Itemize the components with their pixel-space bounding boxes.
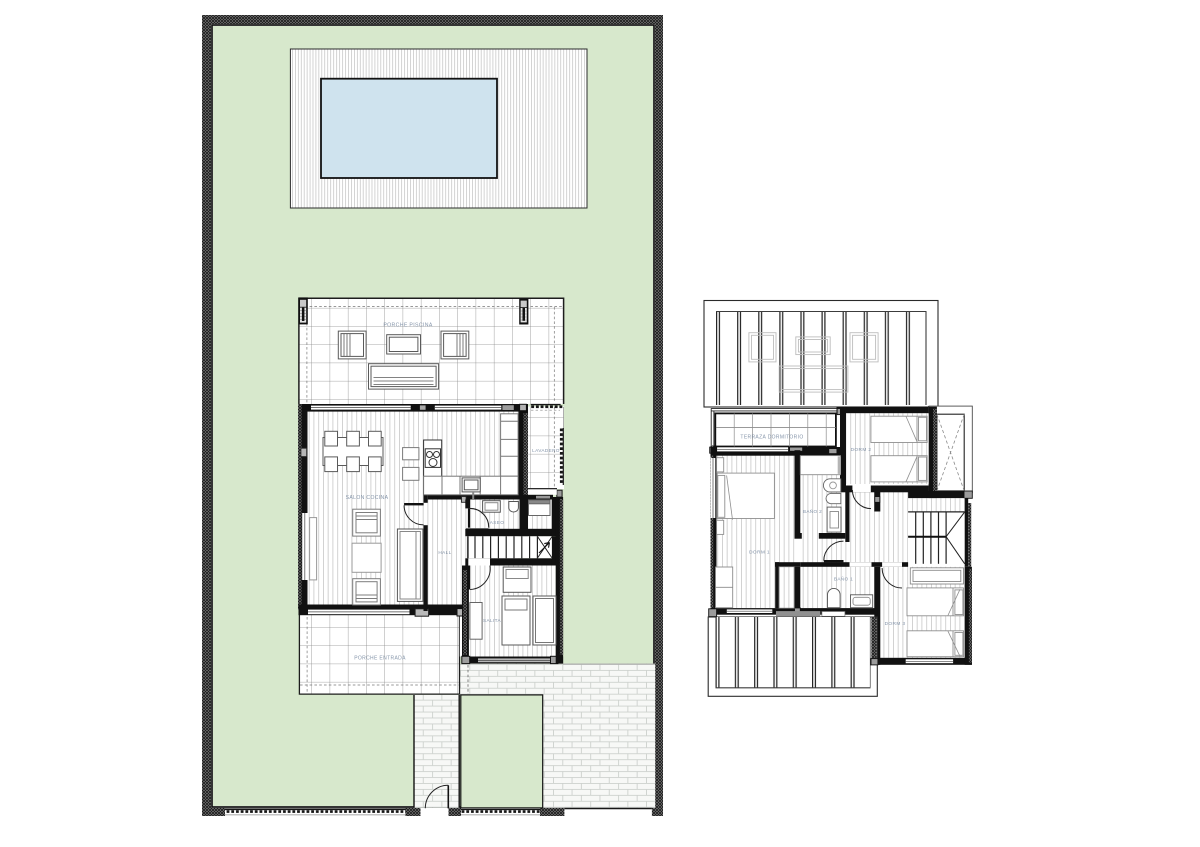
svg-text:DORM 1: DORM 1 [749,550,770,556]
svg-text:BAÑO 1: BAÑO 1 [834,575,853,581]
svg-text:PORCHE ENTRADA: PORCHE ENTRADA [354,655,406,661]
svg-text:SALITA: SALITA [483,618,501,623]
svg-text:BAÑO 2: BAÑO 2 [803,508,822,514]
svg-text:ASEO: ASEO [490,520,504,525]
svg-text:PORCHE PISCINA: PORCHE PISCINA [383,322,432,328]
svg-text:TERRAZA DORMITORIO: TERRAZA DORMITORIO [740,435,803,441]
svg-text:HALL: HALL [438,550,451,555]
svg-text:DORM 3: DORM 3 [885,621,906,627]
svg-text:LAVADERO: LAVADERO [532,448,560,453]
svg-text:SALON COCINA: SALON COCINA [346,495,389,501]
svg-text:DORM 2: DORM 2 [851,447,872,453]
